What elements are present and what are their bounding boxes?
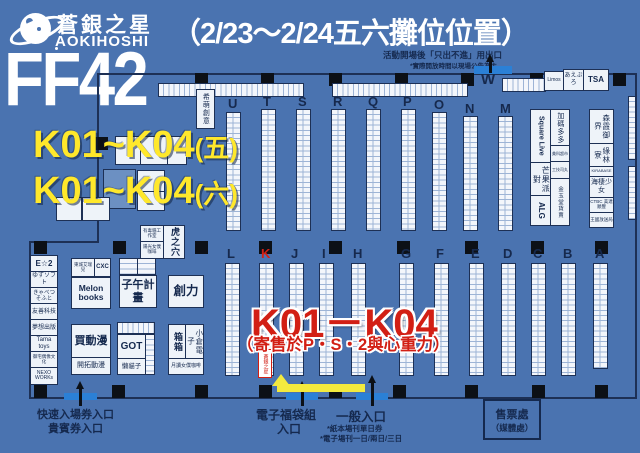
booth-box [119,258,138,275]
row-letter-l: L [227,247,235,260]
booth-column-e [469,263,484,376]
row-letter-n: N [465,102,474,115]
pillar [34,241,47,254]
booth-melon-books: Melon books [71,277,111,309]
booth-tiny-b: 工技司丸 [550,161,570,179]
booth-tsukuyomi: 月讀女僕咖啡 [168,358,204,375]
booth-ogura: 小倉電子 [185,324,204,359]
booth-strip [145,334,155,375]
highlight-friday: K01~K04(五) [33,124,238,167]
pillar [595,385,608,398]
booth-column-n [463,116,478,231]
pillar [113,241,126,254]
row-letter-h: H [353,247,362,260]
general-entrance-arrow-head [368,375,376,383]
booth-senka: 森霞御界 [589,109,614,144]
fast-entrance-arrow-head [76,381,84,389]
booth-column-p [401,109,416,231]
booth-buy-anime: 買動漫 [71,324,111,358]
booth-box [137,258,156,275]
booth-gold-jade: 金玉堂貨賣 [550,178,570,226]
vip-entrance-label: 貴賓券入口 [48,420,103,436]
row-letter-d: D [503,247,512,260]
booth-column-m [498,116,513,231]
row-letter-i: I [322,247,326,260]
booth-nexo-works: NEXO WORKs [30,367,58,385]
booth-square-live: Square Live [530,109,551,163]
booth-aeburo: あえぶろ [563,69,584,91]
booth-column-t [261,109,276,231]
pillar [34,385,47,398]
row-letter-m: M [500,102,511,115]
pillar [465,385,478,398]
highlight-friday-day: (五) [195,133,238,163]
booth-ziwu: 子午計畫 [119,275,157,308]
booth-kingdom: 王國放送局 [589,212,614,228]
row-letter-b: B [563,247,572,260]
booth-alg: ALG [530,195,551,226]
ticket-office-label1: 售票處 [496,406,529,422]
row-letter-s: S [298,95,307,108]
booth-melon-header-b: CXC [94,258,111,277]
fast-entrance-arrow [79,389,82,406]
page-title: （2/23～2/24五六攤位位置） [172,10,529,52]
booth-mango-party: 芒果派對 [530,162,551,196]
booth-ctbc: CTBC 美達順豐 [589,197,614,213]
pillar [195,385,208,398]
row-letter-g: G [401,247,411,260]
highlight-saturday: K01~K04(六) [33,170,238,213]
row-letter-k: K [261,247,270,260]
booth-limos: Limos [544,71,564,91]
booth-strip [628,166,636,220]
pillar [259,385,272,398]
booth-column-c [531,263,546,376]
booth-melon-header-a: 東城艾瑞兒 [71,258,95,277]
highlight-saturday-code: K01~K04 [33,170,195,212]
exit-arrow [489,62,492,73]
event-title: FF42 [4,42,146,118]
pillar [112,385,125,398]
row-letter-p: P [403,95,412,108]
booth-column-d [501,263,516,376]
booth-strip [628,96,636,160]
booth-column-l [225,263,240,376]
row-letter-q: Q [368,95,378,108]
row-letter-f: F [436,247,444,260]
booth-strip [158,83,304,97]
booth-sunshine-maid: 陽光女僕咖啡 [140,241,164,259]
row-letter-u: U [228,97,237,110]
general-entrance-arrow [371,383,374,406]
booth-column-a [593,263,608,369]
row-letter-e: E [471,247,480,260]
booth-tiger-hole: 虎之穴 [163,225,185,259]
row-letter-j: J [291,247,298,260]
booth-sea-girl: 海棲少女 [589,176,614,198]
booth-column-q [366,109,381,231]
pillar [613,73,626,86]
booth-column-s [296,109,311,231]
booth-strip-w [502,78,546,92]
booth-column-b [561,263,576,376]
general-entrance-note2: *電子場刊一日/兩日/三日 [320,433,402,444]
ticket-office-label2: （媒體處） [491,422,534,434]
booth-chuangli: 創力 [168,275,204,308]
booth-strip [332,83,468,97]
route-arrow-horizontal [283,384,365,392]
exit-arrow-head [486,54,494,62]
route-arrow-head [272,374,290,386]
row-letter-c: C [533,247,542,260]
booth-marker-label: 蒼銀之星 [263,354,268,374]
row-letter-t: T [263,95,271,108]
booth-column-o [432,112,447,231]
row-letter-r: R [333,95,342,108]
pillar [393,385,406,398]
highlight-saturday-day: (六) [195,179,238,209]
row-letter-w: W [481,72,495,87]
booth-greenwood: 綠林寮 [589,143,614,167]
booth-tsa: TSA [583,69,609,91]
booth-himoe: 希萌創意 [196,89,215,129]
booth-strip [117,322,155,334]
booth-lazy-cat: 懶貓子 [117,358,146,375]
booth-kaitaku: 開拓動漫 [71,357,111,375]
row-letter-a: A [595,247,604,260]
floor-map-poster: 蒼銀之星 AOKIHOSHI FF42 （2/23～2/24五六攤位位置） K0… [0,0,640,453]
pillar [532,385,545,398]
ticket-office-box: 售票處 （媒體處） [483,399,541,440]
booth-box-box: 箱箱 [168,324,186,359]
booth-got: GOT [117,334,146,359]
pillar [329,241,342,254]
callout-booth-note: （寄售於P・S・2與心重力） [237,331,450,355]
pillar [195,241,208,254]
lucky-entrance-label2: 入口 [277,420,301,437]
row-letter-o: O [434,98,444,111]
booth-column-r [331,109,346,231]
highlight-friday-code: K01~K04 [33,124,195,166]
booth-jiama: 加碼多多 [550,109,570,146]
